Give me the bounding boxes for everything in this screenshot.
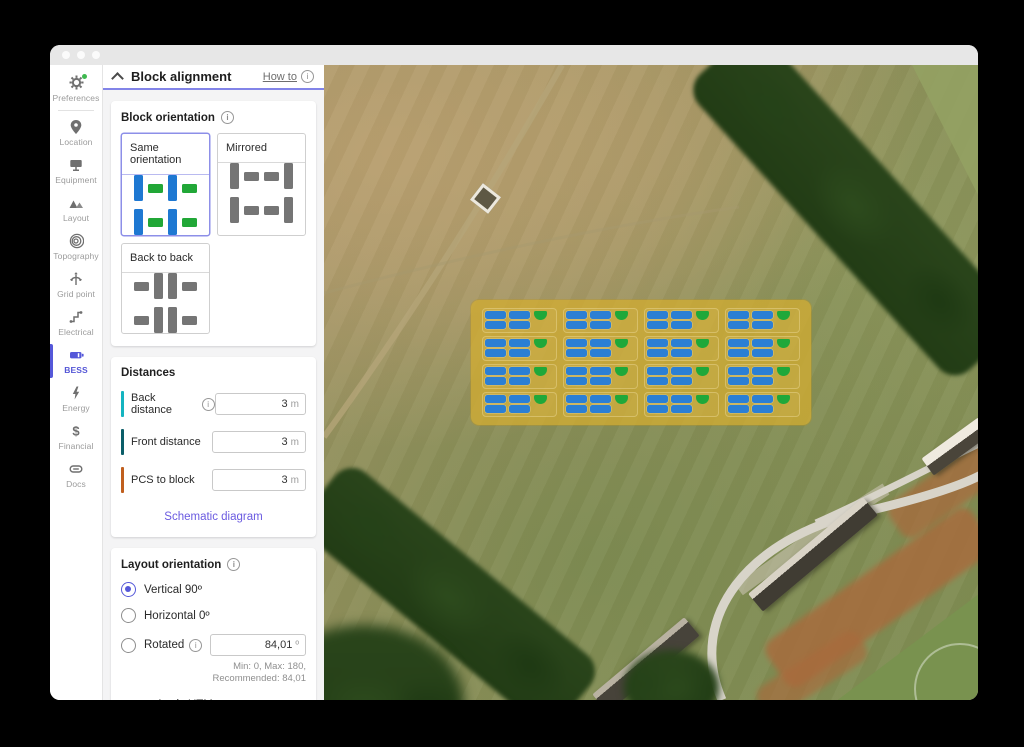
sidebar-item-label: Financial xyxy=(59,441,94,451)
bess-block xyxy=(509,321,530,329)
bess-block-unit[interactable] xyxy=(482,364,557,389)
bess-block xyxy=(509,377,530,385)
window-control-close[interactable] xyxy=(62,51,70,59)
panel-title: Block alignment xyxy=(131,69,231,84)
pcs-unit xyxy=(696,311,709,320)
orientation-option-same[interactable]: Same orientation xyxy=(121,133,210,236)
horizontal-radio[interactable] xyxy=(121,608,136,623)
bess-block xyxy=(590,377,611,385)
info-icon[interactable] xyxy=(227,558,240,571)
bess-block xyxy=(566,367,587,375)
bess-block xyxy=(485,321,506,329)
bess-block xyxy=(728,339,749,347)
bess-block-unit[interactable] xyxy=(563,392,638,417)
bess-block-unit[interactable] xyxy=(725,308,800,333)
bess-block-unit[interactable] xyxy=(644,364,719,389)
location-pin-icon xyxy=(68,119,84,135)
distances-title: Distances xyxy=(121,367,175,379)
info-icon[interactable] xyxy=(301,70,314,83)
sidebar-item-layout[interactable]: Layout xyxy=(50,190,102,228)
layout-orientation-title: Layout orientation xyxy=(121,559,221,571)
bess-block xyxy=(590,311,611,319)
bess-block xyxy=(485,395,506,403)
bess-block xyxy=(752,311,773,319)
sidebar-item-label: Layout xyxy=(63,213,89,223)
accent-bar xyxy=(121,429,124,455)
input-unit: º xyxy=(295,640,299,651)
bess-block-unit[interactable] xyxy=(563,336,638,361)
rotated-helper-text: Min: 0, Max: 180, Recommended: 84,01 xyxy=(121,661,306,686)
bess-block-unit[interactable] xyxy=(482,308,557,333)
info-icon[interactable] xyxy=(189,639,202,652)
sidebar-item-location[interactable]: Location xyxy=(50,114,102,152)
pcs-unit xyxy=(534,367,547,376)
pcs-unit xyxy=(777,395,790,404)
screenshot-stage: Preferences Location xyxy=(0,0,1024,747)
toggle-label: Apply UTM convergence correction xyxy=(156,699,288,700)
sidebar-item-label: Equipment xyxy=(55,175,97,185)
bess-block xyxy=(647,395,668,403)
bess-block xyxy=(671,377,692,385)
sidebar-item-docs[interactable]: Docs xyxy=(50,456,102,494)
orientation-option-label: Back to back xyxy=(122,244,209,273)
bess-block xyxy=(566,311,587,319)
mountains-icon xyxy=(68,195,84,211)
rotated-angle-input[interactable]: 84,01 º xyxy=(210,634,306,656)
sidebar-item-label: Topography xyxy=(53,251,98,261)
bess-block xyxy=(671,311,692,319)
orientation-option-label: Same orientation xyxy=(122,134,209,175)
input-unit: m xyxy=(291,437,299,448)
radio-row-vertical: Vertical 90º xyxy=(121,582,306,597)
input-value: 3 xyxy=(282,436,288,448)
same-orientation-diagram xyxy=(122,175,209,235)
block-orientation-title: Block orientation xyxy=(121,112,215,124)
pcs-unit xyxy=(615,339,628,348)
input-unit: m xyxy=(291,399,299,410)
bess-block-unit[interactable] xyxy=(563,364,638,389)
utm-toggle-row: Apply UTM convergence correction xyxy=(121,699,306,700)
distance-row-back: Back distance 3 m xyxy=(121,391,306,417)
bess-block xyxy=(728,405,749,413)
vertical-radio[interactable] xyxy=(121,582,136,597)
bess-block xyxy=(566,349,587,357)
bess-block xyxy=(566,339,587,347)
bess-block xyxy=(728,367,749,375)
bess-block xyxy=(590,367,611,375)
pcs-unit xyxy=(696,395,709,404)
bess-settings-panel: Block alignment How to Block orientation xyxy=(103,65,324,700)
input-value: 3 xyxy=(282,474,288,486)
radio-label: Rotated xyxy=(144,639,184,651)
bess-block xyxy=(647,377,668,385)
bess-block xyxy=(728,377,749,385)
contours-icon xyxy=(68,233,84,249)
bess-block xyxy=(485,377,506,385)
solar-panel-icon xyxy=(68,157,84,173)
circuit-step-icon xyxy=(68,309,84,325)
bess-block xyxy=(566,377,587,385)
bess-block xyxy=(752,367,773,375)
bess-block xyxy=(566,405,587,413)
sidebar-item-label: Preferences xyxy=(53,93,100,103)
lightning-bolt-icon xyxy=(68,385,84,401)
bess-block xyxy=(485,349,506,357)
battery-icon xyxy=(68,347,85,363)
window-control-maximize[interactable] xyxy=(92,51,100,59)
bess-block xyxy=(590,395,611,403)
app-window: Preferences Location xyxy=(50,45,978,700)
bess-block xyxy=(566,321,587,329)
radio-row-rotated: Rotated 84,01 º xyxy=(121,634,306,656)
bess-block xyxy=(671,405,692,413)
sidebar-divider xyxy=(58,110,94,111)
bess-block xyxy=(509,405,530,413)
satellite-map[interactable] xyxy=(324,65,978,700)
accent-bar xyxy=(121,467,124,493)
distance-row-front: Front distance 3 m xyxy=(121,429,306,455)
svg-text:$: $ xyxy=(72,424,80,439)
block-orientation-card: Block orientation Same orientation xyxy=(111,101,316,346)
sidebar-item-bess[interactable]: BESS xyxy=(50,342,102,380)
paperclip-icon xyxy=(68,461,84,477)
mirrored-diagram xyxy=(218,163,305,223)
input-value: 3 xyxy=(282,398,288,410)
bess-block-unit[interactable] xyxy=(725,364,800,389)
bess-block-unit[interactable] xyxy=(644,308,719,333)
layout-orientation-card: Layout orientation Vertical 90º Horizont… xyxy=(111,548,316,700)
radio-row-horizontal: Horizontal 0º xyxy=(121,608,306,623)
bess-block xyxy=(647,349,668,357)
bess-block xyxy=(647,405,668,413)
notification-dot xyxy=(82,74,87,79)
bess-block xyxy=(752,405,773,413)
bess-block xyxy=(752,349,773,357)
bess-block xyxy=(485,367,506,375)
bess-block xyxy=(647,367,668,375)
pcs-unit xyxy=(615,311,628,320)
bess-block xyxy=(509,311,530,319)
bess-block xyxy=(485,405,506,413)
bess-block xyxy=(752,339,773,347)
bess-block-unit[interactable] xyxy=(482,336,557,361)
schematic-diagram-link[interactable]: Schematic diagram xyxy=(164,511,262,523)
pcs-unit xyxy=(696,339,709,348)
bess-block xyxy=(509,349,530,357)
bess-block-unit[interactable] xyxy=(482,392,557,417)
bess-block xyxy=(590,349,611,357)
distance-label: PCS to block xyxy=(131,474,195,486)
bess-block xyxy=(671,321,692,329)
pcs-unit xyxy=(615,395,628,404)
radio-label: Vertical 90º xyxy=(144,584,202,596)
bess-block xyxy=(647,321,668,329)
back-to-back-diagram xyxy=(122,273,209,333)
sidebar-item-label: Grid point xyxy=(57,289,95,299)
bess-block xyxy=(590,339,611,347)
info-icon[interactable] xyxy=(202,398,215,411)
pcs-unit xyxy=(534,339,547,348)
bess-block-unit[interactable] xyxy=(725,336,800,361)
accent-bar xyxy=(121,391,124,417)
bess-block xyxy=(485,311,506,319)
distance-label: Back distance xyxy=(131,392,197,416)
bess-block xyxy=(671,349,692,357)
sidebar-item-label: Electrical xyxy=(58,327,93,337)
bess-block xyxy=(485,339,506,347)
back-distance-input[interactable]: 3 m xyxy=(215,393,306,415)
pcs-unit xyxy=(777,339,790,348)
orientation-option-mirrored[interactable]: Mirrored xyxy=(217,133,306,236)
bess-block xyxy=(728,349,749,357)
bess-block xyxy=(509,395,530,403)
pcs-unit xyxy=(777,367,790,376)
bess-block xyxy=(509,367,530,375)
pcs-unit xyxy=(777,311,790,320)
distance-row-pcs: PCS to block 3 m xyxy=(121,467,306,493)
pcs-unit xyxy=(534,395,547,404)
bess-block-unit[interactable] xyxy=(563,308,638,333)
bess-block xyxy=(671,339,692,347)
input-value: 84,01 xyxy=(265,639,293,651)
nav-sidebar: Preferences Location xyxy=(50,65,103,700)
bess-block xyxy=(752,321,773,329)
bess-block xyxy=(752,377,773,385)
pcs-unit xyxy=(534,311,547,320)
bess-block xyxy=(590,405,611,413)
pcs-unit xyxy=(615,367,628,376)
distance-label: Front distance xyxy=(131,436,201,448)
bess-block xyxy=(647,339,668,347)
pcs-to-block-input[interactable]: 3 m xyxy=(212,469,306,491)
bess-area-overlay[interactable] xyxy=(471,300,811,425)
bess-block-unit[interactable] xyxy=(644,392,719,417)
bess-block xyxy=(647,311,668,319)
sidebar-item-grid-point[interactable]: Grid point xyxy=(50,266,102,304)
window-control-minimize[interactable] xyxy=(77,51,85,59)
how-to-link[interactable]: How to xyxy=(263,71,297,83)
sidebar-item-equipment[interactable]: Equipment xyxy=(50,152,102,190)
dollar-icon: $ xyxy=(68,423,84,439)
bess-block xyxy=(671,395,692,403)
bess-block xyxy=(728,311,749,319)
bess-block xyxy=(590,321,611,329)
orientation-option-label: Mirrored xyxy=(218,134,305,163)
window-titlebar xyxy=(50,45,978,65)
chevron-up-icon[interactable] xyxy=(111,72,124,85)
rotated-radio[interactable] xyxy=(121,638,136,653)
bess-block xyxy=(509,339,530,347)
pcs-unit xyxy=(696,367,709,376)
sidebar-item-energy[interactable]: Energy xyxy=(50,380,102,418)
radio-label: Horizontal 0º xyxy=(144,610,210,622)
sidebar-item-topography[interactable]: Topography xyxy=(50,228,102,266)
panel-body: Block orientation Same orientation xyxy=(103,90,324,700)
grid-point-tree-icon xyxy=(68,271,84,287)
bess-block xyxy=(728,321,749,329)
bess-block xyxy=(752,395,773,403)
front-distance-input[interactable]: 3 m xyxy=(212,431,306,453)
bess-block xyxy=(671,367,692,375)
distances-card: Distances Back distance 3 m xyxy=(111,357,316,537)
sidebar-item-label: Docs xyxy=(66,479,86,489)
bess-block-unit[interactable] xyxy=(644,336,719,361)
sidebar-item-label: Location xyxy=(60,137,93,147)
sidebar-item-electrical[interactable]: Electrical xyxy=(50,304,102,342)
bess-block xyxy=(566,395,587,403)
orientation-option-back-to-back[interactable]: Back to back xyxy=(121,243,210,334)
sidebar-item-label: Energy xyxy=(62,403,90,413)
bess-block xyxy=(728,395,749,403)
info-icon[interactable] xyxy=(221,111,234,124)
sidebar-item-preferences[interactable]: Preferences xyxy=(50,69,102,107)
sidebar-item-label: BESS xyxy=(64,365,88,375)
sidebar-item-financial[interactable]: $ Financial xyxy=(50,418,102,456)
input-unit: m xyxy=(291,475,299,486)
bess-block-unit[interactable] xyxy=(725,392,800,417)
panel-header: Block alignment How to xyxy=(103,65,324,90)
